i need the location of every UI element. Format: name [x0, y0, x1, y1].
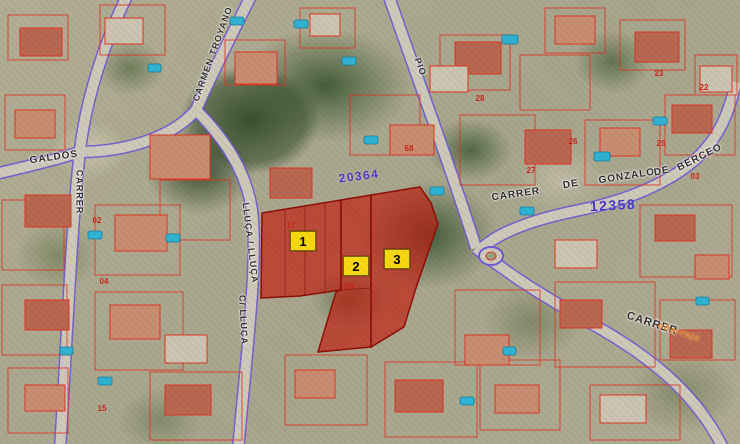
street-label-carrer: CARRER — [75, 170, 84, 215]
street-label-carmen-troyano: CARMEN TROYANO — [192, 5, 235, 102]
street-label-de: DE — [562, 179, 579, 192]
house-number-27: 27 — [527, 167, 536, 175]
house-number-25: 25 — [657, 140, 666, 148]
zone-number-12358: 12358 — [589, 197, 636, 213]
street-label-pio: PIO — [413, 57, 428, 77]
house-number-23: 23 — [655, 70, 664, 78]
street-label-gonzalo: GONZALO — [598, 168, 656, 187]
house-number-26: 26 — [569, 138, 578, 146]
street-label-de: DE — [653, 165, 671, 178]
house-number-15: 15 — [98, 405, 107, 413]
street-label-berceo: BERCEO — [676, 142, 724, 173]
street-label-carrer: CARRER — [491, 187, 541, 204]
house-number-04: 04 — [100, 278, 109, 286]
parcel-marker-1[interactable]: 1 — [290, 231, 316, 251]
house-number-28: 28 — [476, 95, 485, 103]
map-labels-layer: CARMEN TROYANOGALDOSCARRERLLUÇA / LLUÇAC… — [0, 0, 740, 444]
street-label-llu-a-llu-a: LLUÇA / LLUÇA — [241, 202, 260, 284]
house-number-02: 02 — [93, 217, 102, 225]
street-label-galdos: GALDOS — [29, 150, 79, 167]
house-number-22: 22 — [700, 84, 709, 92]
house-number-17: 17 — [287, 222, 296, 230]
house-number-03: 03 — [691, 173, 700, 181]
parcel-marker-2[interactable]: 2 — [343, 256, 369, 276]
house-number-09: 09 — [345, 283, 354, 291]
house-number-68: 68 — [405, 145, 414, 153]
zone-number-20364: 20364 — [338, 168, 380, 185]
parcel-marker-3[interactable]: 3 — [384, 249, 410, 269]
street-label-c-llu-a: C/ LLUÇA — [237, 295, 249, 345]
map-canvas[interactable]: CARMEN TROYANOGALDOSCARRERLLUÇA / LLUÇAC… — [0, 0, 740, 444]
